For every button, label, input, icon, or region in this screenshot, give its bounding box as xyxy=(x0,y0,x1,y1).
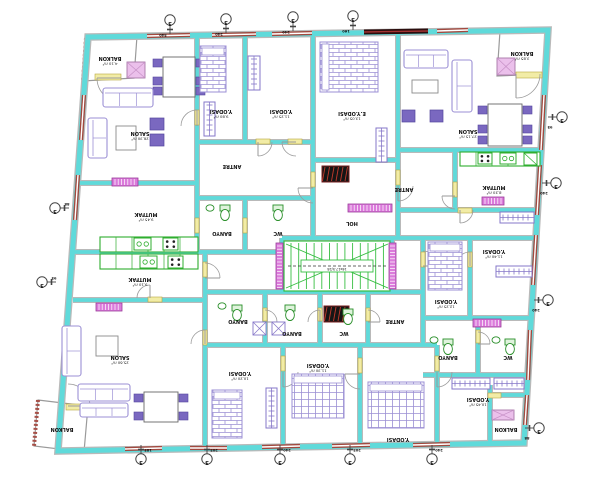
room-label: Y.ODASI10.20 m² xyxy=(229,370,253,382)
room-label: Y.ODASI11.40 m² xyxy=(483,248,507,260)
room-name: BALKON xyxy=(51,426,74,432)
room-label: BANYO xyxy=(212,230,232,236)
wash-basin xyxy=(492,337,500,343)
floor-plan-svg: 16x17.5/28 BALKON4.10 m²SALON26.30 m²Y.O… xyxy=(0,0,600,482)
radiator xyxy=(348,204,392,212)
wardrobe xyxy=(248,56,260,90)
bed-pillow xyxy=(214,392,240,399)
door-threshold xyxy=(243,218,247,233)
stove xyxy=(168,256,183,268)
marker-number: 3 xyxy=(224,19,228,25)
room-area: 9.45 m² xyxy=(138,218,153,223)
stove-burner xyxy=(166,240,169,243)
armchair xyxy=(150,134,164,146)
window-gap xyxy=(413,444,450,445)
room-area: 11.40 m² xyxy=(485,255,503,260)
radiator xyxy=(112,178,138,186)
bed-pillow xyxy=(202,48,224,55)
bed-pillow xyxy=(294,376,342,383)
stove-burner xyxy=(173,240,176,243)
door-threshold xyxy=(453,182,457,197)
bed xyxy=(212,390,242,438)
marker-number: 3 xyxy=(351,16,355,22)
stove xyxy=(478,153,492,164)
dining-set xyxy=(153,57,205,97)
room-name: E.Y.ODASI xyxy=(338,110,366,116)
marker-dimension: 205 xyxy=(353,448,361,452)
marker-number: 3 xyxy=(546,300,550,306)
radiator xyxy=(276,243,283,289)
dining-chair xyxy=(134,394,143,402)
stove-burner xyxy=(178,263,181,266)
room-label: SALON25.60 m² xyxy=(111,354,130,366)
marker-number: 3 xyxy=(291,17,295,23)
door-threshold xyxy=(358,358,362,373)
room-name: MUTFAK xyxy=(133,211,157,217)
room-label: Y.ODASI11.25 m² xyxy=(270,108,294,120)
dining-table xyxy=(488,104,522,146)
stove-burner xyxy=(481,155,484,158)
room-area: 25.60 m² xyxy=(111,361,129,366)
dining-chair xyxy=(134,412,143,420)
marker-dimension: 160 xyxy=(342,29,350,33)
marker-dimension: 240 xyxy=(540,191,548,195)
room-label: MUTFAK9.45 m² xyxy=(133,211,157,223)
room-area: 3.85 m² xyxy=(514,57,529,62)
room-label: BALKON xyxy=(51,426,74,432)
room-name: ANTRE xyxy=(385,318,404,324)
stove-burner xyxy=(173,245,176,248)
toilet-bowl xyxy=(274,209,283,220)
marker-dimension: 205 xyxy=(210,448,218,452)
wardrobe xyxy=(496,266,532,277)
room-name: Y.ODASI xyxy=(435,298,459,304)
wardrobe xyxy=(500,212,534,223)
room-label: Y.ODASI10.45 m² xyxy=(467,396,491,408)
stove-burner xyxy=(481,160,484,163)
room-name: BANYO xyxy=(282,330,302,336)
room-name: BALKON xyxy=(511,50,534,56)
sofa xyxy=(88,118,107,158)
marker-dimension: 240 xyxy=(283,448,291,452)
room-name: HOL xyxy=(345,220,357,226)
room-area: 26.30 m² xyxy=(131,137,149,142)
dining-chair xyxy=(478,125,487,133)
toilet xyxy=(273,205,283,221)
marker-dimension: 88 xyxy=(524,436,530,440)
room-label: BANYO xyxy=(228,318,248,324)
room-area: 10.20 m² xyxy=(231,377,249,382)
bed xyxy=(320,42,378,92)
room-label: SALON27.15 m² xyxy=(459,128,478,140)
coffee-table xyxy=(96,336,118,356)
armchair xyxy=(430,110,443,122)
room-label: Y.ODASI11.30 m² xyxy=(307,362,331,374)
radiator-body xyxy=(473,319,501,327)
sofa xyxy=(78,384,130,401)
radiator xyxy=(473,319,501,327)
room-name: BANYO xyxy=(438,354,458,360)
sofa-body xyxy=(78,384,130,401)
stove-burner xyxy=(487,160,490,163)
sofa xyxy=(103,88,153,107)
toilet xyxy=(285,305,295,321)
bed-pillow xyxy=(322,44,329,90)
room-label: WC xyxy=(503,354,513,360)
door-threshold xyxy=(421,252,425,267)
room-area: 11.30 m² xyxy=(309,369,327,374)
marker-number: 3 xyxy=(53,208,57,214)
bed-pillow xyxy=(370,384,422,391)
fridge xyxy=(524,153,537,165)
dining-table xyxy=(163,57,195,97)
dining-chair xyxy=(179,394,188,402)
room-area: 13.05 m² xyxy=(343,117,361,122)
door-threshold xyxy=(516,72,542,78)
sofa xyxy=(62,326,81,376)
radiator xyxy=(389,243,396,289)
marker-dimension: 185 xyxy=(144,448,152,452)
dining-chair xyxy=(523,125,532,133)
room-name: BALKON xyxy=(99,55,122,61)
room-name: MUTFAK xyxy=(127,276,151,282)
toilet-bowl xyxy=(506,343,515,354)
section-marker: 395 xyxy=(37,276,57,288)
sofa xyxy=(80,403,128,417)
room-label: ANTRE xyxy=(385,318,404,324)
stove-burner xyxy=(171,263,174,266)
door-threshold xyxy=(203,262,207,277)
armchair xyxy=(402,110,415,122)
room-area: 27.15 m² xyxy=(459,135,477,140)
section-marker: 388 xyxy=(50,202,70,214)
toilet-bowl xyxy=(344,313,353,324)
radiator xyxy=(96,303,122,311)
wardrobe xyxy=(376,128,387,162)
dining-table xyxy=(144,392,178,422)
armchair xyxy=(150,118,164,130)
window-gap xyxy=(262,446,300,447)
door-threshold xyxy=(95,74,121,80)
dark-window-inner xyxy=(364,31,428,32)
floor-plan: 16x17.5/28 BALKON4.10 m²SALON26.30 m²Y.O… xyxy=(0,0,600,482)
room-name: WC xyxy=(503,354,513,360)
window-gap xyxy=(272,33,312,34)
door-threshold xyxy=(311,172,315,187)
kitchen-sink xyxy=(140,256,157,268)
sofa-body xyxy=(103,88,153,107)
dining-chair xyxy=(153,59,162,67)
pink-cabinet xyxy=(497,58,515,75)
shaft xyxy=(322,166,349,182)
room-label: MUTFAK9.10 m² xyxy=(127,276,151,288)
marker-number: 3 xyxy=(560,117,564,123)
dining-set xyxy=(478,104,532,146)
marker-dimension: 95 xyxy=(547,125,553,129)
window-gap xyxy=(147,35,190,36)
wardrobe xyxy=(266,388,277,428)
room-name: Y.ODASI xyxy=(467,396,491,402)
radiator-body xyxy=(276,243,283,289)
room-label: MUTFAK8.20 m² xyxy=(481,184,505,196)
dining-chair xyxy=(523,136,532,144)
marker-number: 3 xyxy=(40,282,44,288)
wash-basin xyxy=(206,205,214,211)
stove-body xyxy=(163,238,178,250)
room-label: BANYO xyxy=(282,330,302,336)
room-name: Y.ODASI xyxy=(307,362,331,368)
toilet xyxy=(220,205,230,221)
marker-dimension: 95 xyxy=(51,276,57,280)
room-area: 10.45 m² xyxy=(469,403,487,408)
marker-dimension: 240 xyxy=(532,308,540,312)
room-label: E.Y.ODASI13.05 m² xyxy=(338,110,366,122)
room-area: 8.20 m² xyxy=(486,191,501,196)
marker-number: 3 xyxy=(348,459,352,465)
marker-dimension: 540 xyxy=(159,33,167,37)
kitchen-sink xyxy=(134,238,151,250)
bed xyxy=(292,374,344,418)
window-gap xyxy=(332,445,370,446)
radiator xyxy=(482,197,504,205)
toilet xyxy=(343,309,353,325)
room-area: 11.25 m² xyxy=(272,115,290,120)
room-label: BALKON xyxy=(495,426,518,432)
room-label: WC xyxy=(273,230,283,236)
sofa xyxy=(404,50,448,68)
stove-body xyxy=(168,256,183,268)
bed xyxy=(200,46,226,92)
pink-cabinet xyxy=(127,62,145,78)
wash-basin xyxy=(218,303,226,309)
marker-number: 3 xyxy=(430,459,434,465)
sofa-body xyxy=(80,403,128,417)
stove-burner xyxy=(171,258,174,261)
bed-pillow xyxy=(430,244,460,251)
toilet xyxy=(505,339,515,355)
stove-burner xyxy=(166,245,169,248)
wash-basin xyxy=(430,337,438,343)
toilet-bowl xyxy=(221,209,230,220)
dining-chair xyxy=(153,87,162,95)
marker-number: 3 xyxy=(554,183,558,189)
stove-burner xyxy=(178,258,181,261)
dining-chair xyxy=(153,77,162,85)
room-name: SALON xyxy=(111,354,130,360)
room-area: 4.10 m² xyxy=(102,62,117,67)
room-name: ANTRE xyxy=(222,163,241,169)
wardrobe xyxy=(494,378,524,389)
room-area: 9.10 m² xyxy=(132,283,147,288)
room-area: 9.80 m² xyxy=(213,115,228,120)
dining-set xyxy=(134,392,188,422)
radiator-body xyxy=(389,243,396,289)
pink-cabinet xyxy=(492,410,514,420)
door-threshold xyxy=(281,356,285,371)
room-name: SALON xyxy=(459,128,478,134)
wardrobe xyxy=(204,102,215,136)
room-name: WC xyxy=(273,230,283,236)
room-name: Y.ODASI xyxy=(229,370,253,376)
door-threshold xyxy=(396,170,400,185)
room-label: SALON26.30 m² xyxy=(131,130,150,142)
marker-dimension: 240 xyxy=(435,448,443,452)
kitchen-sink xyxy=(500,153,516,164)
room-name: ANTRE xyxy=(394,186,413,192)
dining-chair xyxy=(478,136,487,144)
marker-dimension: 88 xyxy=(64,202,70,206)
room-label: Y.ODASI12.25 m² xyxy=(435,298,459,310)
toilet-bowl xyxy=(286,309,295,320)
room-name: Y.ODASI xyxy=(270,108,294,114)
stove xyxy=(163,238,178,250)
room-label: Y.ODASI xyxy=(387,436,411,442)
stove-body xyxy=(478,153,492,164)
room-name: Y.ODASI xyxy=(210,108,234,114)
marker-number: 3 xyxy=(168,20,172,26)
room-name: MUTFAK xyxy=(481,184,505,190)
marker-dimension: 240 xyxy=(215,32,223,36)
wardrobe xyxy=(452,378,490,389)
washing-machine xyxy=(253,322,266,335)
dining-chair xyxy=(478,106,487,114)
marker-number: 3 xyxy=(278,459,282,465)
dining-chair xyxy=(179,412,188,420)
room-label: BANYO xyxy=(438,354,458,360)
coffee-table xyxy=(412,80,438,93)
room-name: BALKON xyxy=(495,426,518,432)
section-marker: 395 xyxy=(547,112,567,129)
room-name: BANYO xyxy=(228,318,248,324)
marker-number: 3 xyxy=(537,428,541,434)
toilet xyxy=(443,339,453,355)
bed xyxy=(368,382,424,428)
bed xyxy=(428,242,462,290)
room-name: SALON xyxy=(131,130,150,136)
room-label: HOL xyxy=(345,220,357,226)
room-label: ANTRE xyxy=(394,186,413,192)
sofa-body xyxy=(404,50,448,68)
dining-chair xyxy=(523,106,532,114)
marker-number: 3 xyxy=(139,459,143,465)
stove-burner xyxy=(487,155,490,158)
sofa xyxy=(452,60,472,112)
room-area: 12.25 m² xyxy=(437,305,455,310)
staircase: 16x17.5/28 xyxy=(284,241,390,291)
window-gap xyxy=(437,30,468,31)
room-label: WC xyxy=(339,330,349,336)
marker-dimension: 240 xyxy=(282,30,290,34)
room-name: WC xyxy=(339,330,349,336)
marker-number: 3 xyxy=(205,459,209,465)
room-name: BANYO xyxy=(212,230,232,236)
room-label: ANTRE xyxy=(222,163,241,169)
stair-note: 16x17.5/28 xyxy=(327,267,346,271)
toilet-bowl xyxy=(444,343,453,354)
room-name: Y.ODASI xyxy=(483,248,507,254)
door-threshold xyxy=(195,218,199,233)
room-name: Y.ODASI xyxy=(387,436,411,442)
